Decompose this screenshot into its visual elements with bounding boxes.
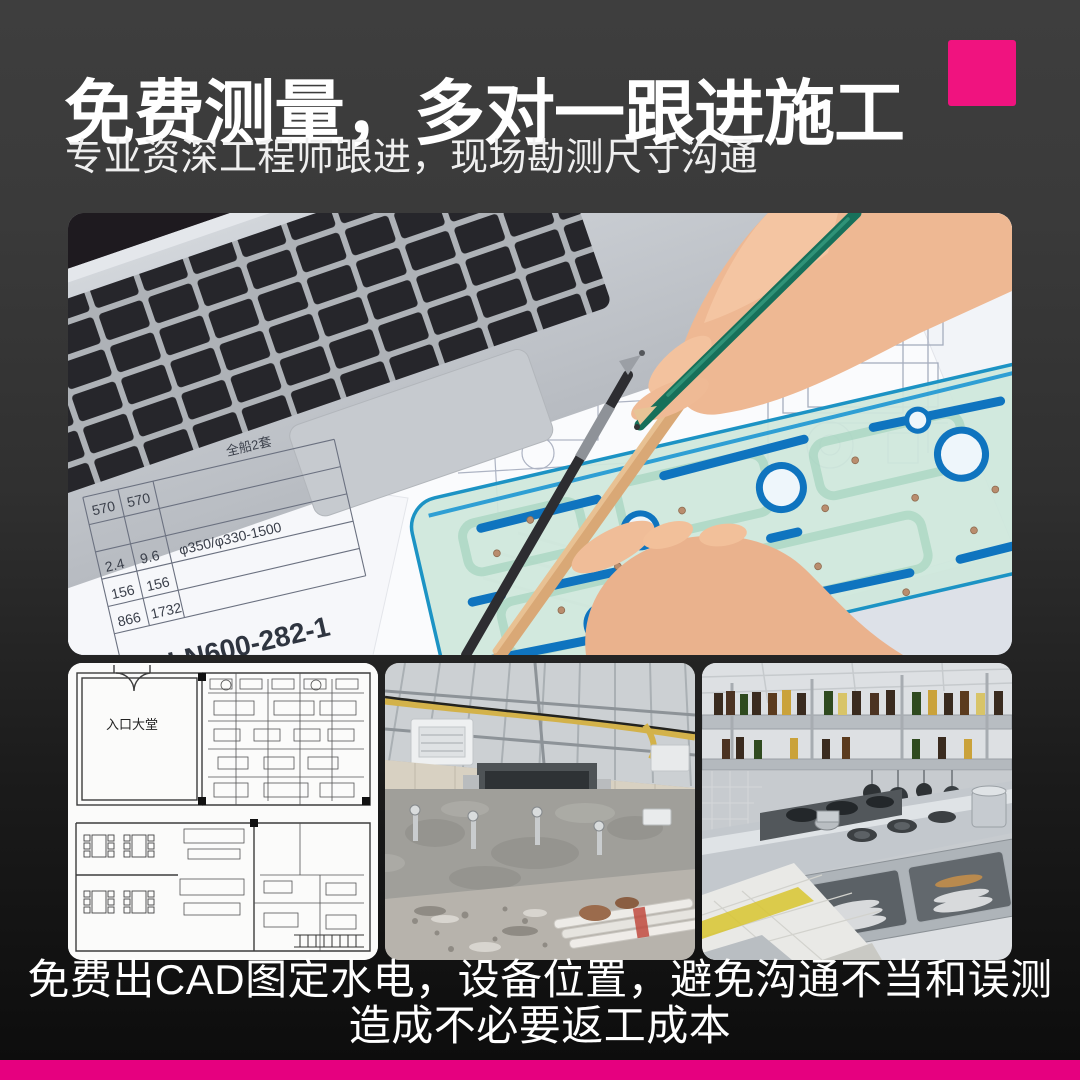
gallery-photo-construction-site bbox=[385, 663, 695, 960]
gallery-photo-floorplan: 入口大堂 bbox=[68, 663, 378, 960]
floorplan-illustration: 入口大堂 bbox=[68, 663, 378, 960]
bottom-accent-bar bbox=[0, 1060, 1080, 1080]
hero-photo-drafting: 570 570 2.4 9.6 φ350/φ330-1500 156 156 8… bbox=[68, 213, 1012, 655]
dirt-pile bbox=[579, 905, 611, 921]
promo-poster: 免费测量，多对一跟进施工 专业资深工程师跟进，现场勘测尺寸沟通 bbox=[0, 0, 1080, 1080]
footer-caption: 免费出CAD图定水电，设备位置，避免沟通不当和误测 造成不必要返工成本 bbox=[0, 957, 1080, 1049]
footer-caption-line2: 造成不必要返工成本 bbox=[0, 1003, 1080, 1049]
construction-site-illustration bbox=[385, 663, 695, 960]
stock-pot bbox=[972, 786, 1006, 827]
floorplan-room-label: 入口大堂 bbox=[106, 717, 158, 732]
gallery-photo-kitchen bbox=[702, 663, 1012, 960]
electrical-box bbox=[643, 809, 671, 825]
ac-unit-right bbox=[651, 745, 689, 771]
ac-cassette-unit bbox=[411, 719, 473, 765]
accent-square bbox=[948, 40, 1016, 106]
footer-caption-line1: 免费出CAD图定水电，设备位置，避免沟通不当和误测 bbox=[0, 957, 1080, 1003]
kitchen-illustration bbox=[702, 663, 1012, 960]
hero-photo-illustration: 570 570 2.4 9.6 φ350/φ330-1500 156 156 8… bbox=[68, 213, 1012, 655]
page-subtitle: 专业资深工程师跟进，现场勘测尺寸沟通 bbox=[65, 126, 758, 181]
